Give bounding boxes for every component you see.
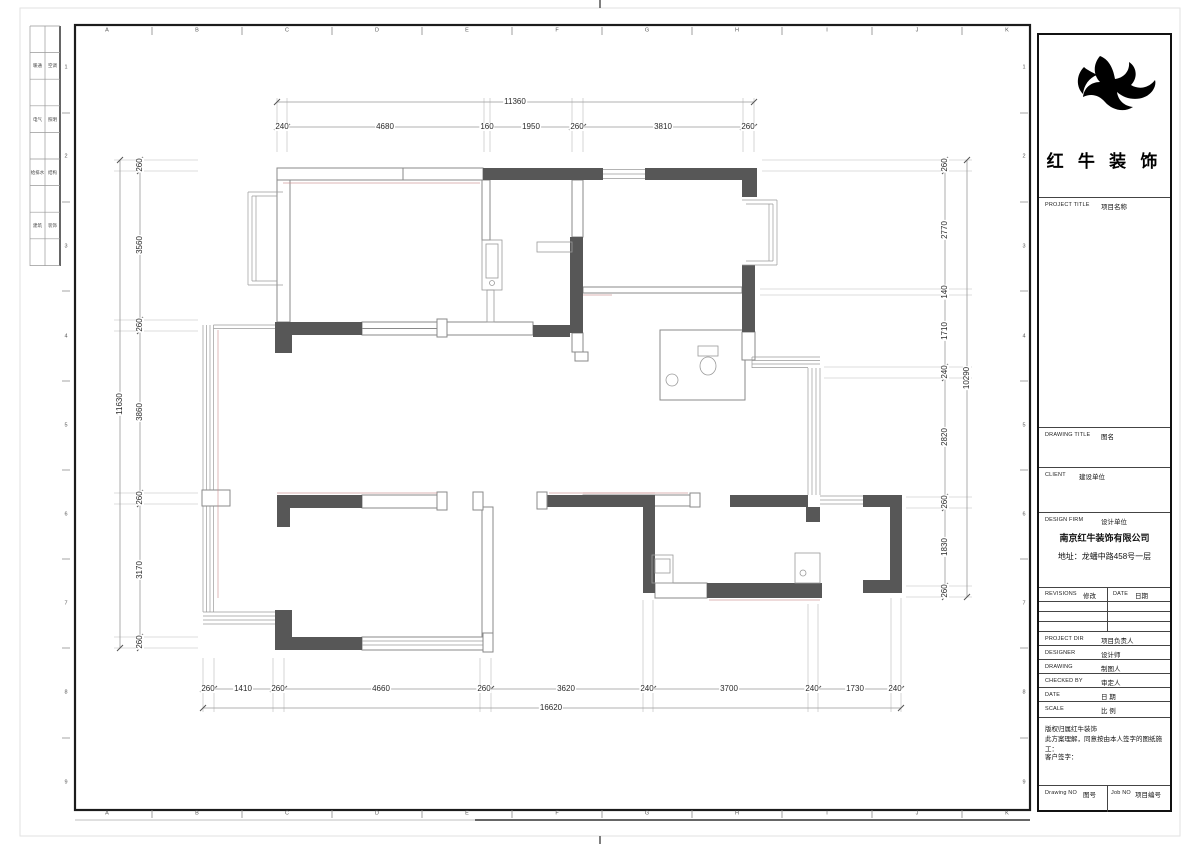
dim-label: 260	[569, 123, 584, 131]
grid-letter: A	[105, 811, 109, 817]
grid-letter: G	[645, 28, 649, 34]
row-project-dir-cn: 项目负责人	[1101, 635, 1134, 645]
grid-number: 8	[64, 690, 67, 696]
revisions-label-cn: 修改	[1083, 590, 1096, 600]
project-title-label-cn: 项目名称	[1101, 201, 1127, 211]
door-jambs	[202, 319, 700, 652]
grid-number: 6	[1022, 512, 1025, 518]
dim-label: 140	[941, 284, 949, 299]
grid-number: 2	[64, 154, 67, 160]
dim-label: 160	[479, 123, 494, 131]
grid-letter: B	[195, 811, 199, 817]
row-drawing-cn: 制图人	[1101, 663, 1121, 673]
client-label-cn: 建设单位	[1079, 471, 1105, 481]
dimension-ticks	[117, 99, 970, 711]
margin-cell: 空调	[48, 64, 57, 69]
grid-letter: A	[105, 28, 109, 34]
dim-label: 240	[639, 685, 654, 693]
grid-letter: F	[555, 28, 558, 34]
dim-label: 260	[740, 123, 755, 131]
date-col-label-cn: 日期	[1135, 590, 1148, 600]
dim-label: 260	[136, 490, 144, 505]
design-firm-label-cn: 设计单位	[1101, 516, 1127, 526]
grid-number: 7	[64, 601, 67, 607]
row-scale-cn: 比 例	[1101, 705, 1116, 715]
drawing-title-label-en: DRAWING TITLE	[1045, 432, 1090, 438]
dim-label: 260	[476, 685, 491, 693]
row-checked-by-cn: 审定人	[1101, 677, 1121, 687]
sheet-frame	[62, 25, 1030, 820]
margin-cell: 给排水	[31, 170, 45, 175]
dim-label: 3810	[653, 123, 673, 131]
grid-letter: K	[1005, 811, 1009, 817]
grid-number: 4	[64, 334, 67, 340]
redbull-logo-icon	[1054, 49, 1159, 137]
grid-letter: C	[285, 811, 289, 817]
margin-cell: 结构	[48, 170, 57, 175]
grid-number: 5	[1022, 423, 1025, 429]
row-date-cn: 日 期	[1101, 691, 1116, 701]
revisions-label-en: REVISIONS	[1045, 591, 1077, 597]
dim-label: 2770	[941, 220, 949, 240]
grid-number: 2	[1022, 154, 1025, 160]
finish-lines	[218, 183, 820, 600]
dim-label: 3620	[556, 685, 576, 693]
grid-number: 1	[64, 65, 67, 71]
grid-letter: E	[465, 28, 469, 34]
dim-label: 4660	[371, 685, 391, 693]
margin-cell: 装饰	[48, 224, 57, 229]
design-firm-label-en: DESIGN FIRM	[1045, 517, 1083, 523]
dim-label: 260	[136, 157, 144, 172]
grid-letter: D	[375, 811, 379, 817]
windows	[203, 170, 863, 646]
copyright-line1: 版权归属红牛装饰	[1045, 723, 1168, 733]
dim-label: 240	[887, 685, 902, 693]
dim-overall-top: 11360	[503, 98, 527, 106]
grid-number: 5	[64, 423, 67, 429]
grid-number: 3	[1022, 244, 1025, 250]
dim-label: 1710	[941, 321, 949, 341]
grid-number: 4	[1022, 334, 1025, 340]
project-title-label-en: PROJECT TITLE	[1045, 202, 1090, 208]
date-col-label-en: DATE	[1113, 591, 1128, 597]
title-block: 红 牛 装 饰 PROJECT TITLE 项目名称 DRAWING TITLE…	[1037, 33, 1172, 812]
grid-letter: C	[285, 28, 289, 34]
grid-number: 9	[64, 780, 67, 786]
grid-number: 9	[1022, 780, 1025, 786]
row-checked-by-en: CHECKED BY	[1045, 678, 1083, 684]
grid-letter: D	[375, 28, 379, 34]
dim-label: 3700	[719, 685, 739, 693]
dim-label: 1730	[845, 685, 865, 693]
dim-overall-bottom: 16620	[539, 704, 563, 712]
dim-label: 260	[941, 583, 949, 598]
dim-label: 260	[200, 685, 215, 693]
copyright-line3: 客户签字：	[1045, 751, 1168, 761]
dim-label: 240	[274, 123, 289, 131]
drawing-title-label-cn: 图名	[1101, 431, 1114, 441]
grid-letter: H	[735, 811, 739, 817]
dim-label: 260	[136, 317, 144, 332]
dim-label: 3560	[136, 235, 144, 255]
grid-letter: B	[195, 28, 199, 34]
grid-number: 3	[64, 244, 67, 250]
margin-cell: 照明	[48, 117, 57, 122]
row-project-dir-en: PROJECT DIR	[1045, 636, 1084, 642]
copyright-line2: 此方案理解，同意按由本人签字的图纸施工：	[1045, 733, 1170, 753]
job-no-label-cn: 项目编号	[1135, 789, 1161, 799]
dim-label: 3860	[136, 402, 144, 422]
dim-label: 260	[136, 634, 144, 649]
grid-letter: I	[826, 28, 828, 34]
dim-label: 1410	[233, 685, 253, 693]
grid-letter: E	[465, 811, 469, 817]
dim-label: 3170	[136, 560, 144, 580]
row-designer-en: DESIGNER	[1045, 650, 1075, 656]
dim-label: 1950	[521, 123, 541, 131]
walls-thin	[277, 168, 755, 650]
dim-label: 240	[804, 685, 819, 693]
row-designer-cn: 设计师	[1101, 649, 1121, 659]
margin-cell: 建筑	[33, 224, 42, 229]
grid-number: 6	[64, 512, 67, 518]
dim-label: 260	[270, 685, 285, 693]
company-name: 南京红牛装饰有限公司	[1039, 531, 1170, 544]
dimension-lines	[120, 102, 967, 708]
grid-number: 7	[1022, 601, 1025, 607]
grid-letter: J	[916, 811, 919, 817]
dim-overall-right: 10290	[963, 366, 971, 390]
row-date-en: DATE	[1045, 692, 1060, 698]
job-no-label-en: Job NO	[1111, 790, 1131, 796]
grid-letter: I	[826, 811, 828, 817]
dim-label: 260	[941, 157, 949, 172]
grid-letter: G	[645, 811, 649, 817]
dim-label: 260	[941, 494, 949, 509]
grid-number: 8	[1022, 690, 1025, 696]
row-scale-en: SCALE	[1045, 706, 1064, 712]
grid-letter: F	[555, 811, 558, 817]
client-label-en: CLIENT	[1045, 472, 1066, 478]
grid-number: 1	[1022, 65, 1025, 71]
floor-plan-drawing	[0, 0, 1200, 844]
margin-cell: 电气	[33, 117, 42, 122]
dim-label: 240	[941, 364, 949, 379]
margin-cell: 暖通	[33, 64, 42, 69]
grid-letter: H	[735, 28, 739, 34]
grid-letter: K	[1005, 28, 1009, 34]
dim-overall-left: 11630	[116, 392, 124, 416]
brand-name: 红 牛 装 饰	[1039, 147, 1170, 172]
dim-label: 4680	[375, 123, 395, 131]
row-drawing-en: DRAWING	[1045, 664, 1073, 670]
dim-label: 1830	[941, 537, 949, 557]
drawing-no-label-en: Drawing NO	[1045, 790, 1077, 796]
dim-label: 2820	[941, 427, 949, 447]
drawing-no-label-cn: 图号	[1083, 789, 1096, 799]
grid-letter: J	[916, 28, 919, 34]
company-address: 地址：龙蟠中路458号一层	[1039, 551, 1170, 562]
drawing-sheet: A B C D E F G H I J K A B C D E F G H I …	[0, 0, 1200, 844]
